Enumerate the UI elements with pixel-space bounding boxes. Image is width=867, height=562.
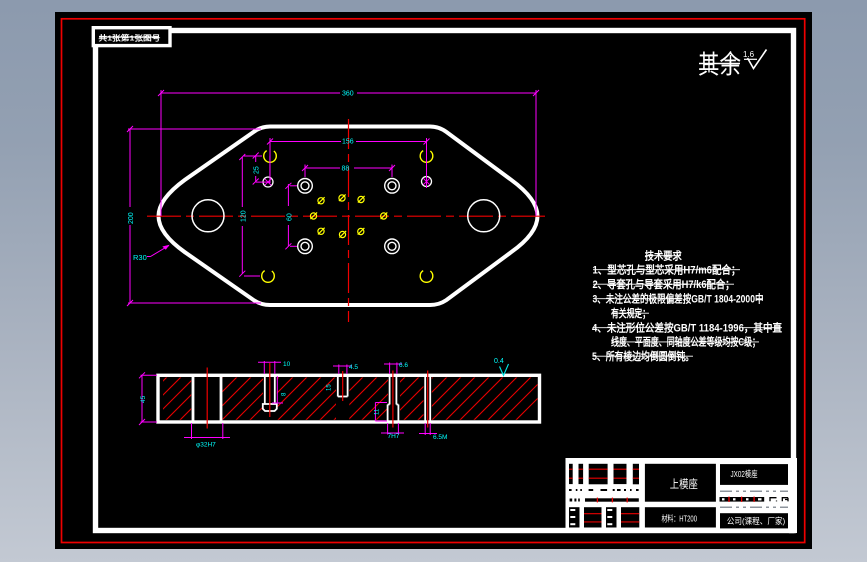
svg-text:88: 88 xyxy=(342,166,350,173)
svg-text:7H7: 7H7 xyxy=(388,433,400,440)
svg-text:6.6: 6.6 xyxy=(399,362,408,369)
svg-text:其余: 其余 xyxy=(698,50,741,80)
svg-text:JX02模座: JX02模座 xyxy=(731,469,758,479)
svg-text:25: 25 xyxy=(254,166,261,174)
svg-text:材料：HT200: 材料：HT200 xyxy=(662,513,698,523)
svg-text:15: 15 xyxy=(327,384,333,391)
svg-text:120: 120 xyxy=(240,210,247,222)
svg-text:φ32H7: φ32H7 xyxy=(196,442,216,449)
svg-text:60: 60 xyxy=(286,213,293,221)
svg-text:10: 10 xyxy=(283,361,291,368)
svg-text:200: 200 xyxy=(128,212,135,224)
svg-text:公司(课程、厂家): 公司(课程、厂家) xyxy=(727,516,786,526)
svg-text:R30: R30 xyxy=(133,253,147,262)
svg-text:1.6: 1.6 xyxy=(743,50,755,59)
svg-text:共1张第1张图号: 共1张第1张图号 xyxy=(99,34,162,43)
svg-text:156: 156 xyxy=(342,139,354,146)
svg-text:上模座: 上模座 xyxy=(670,477,698,491)
svg-text:11: 11 xyxy=(374,408,380,415)
svg-text:45: 45 xyxy=(140,395,147,403)
svg-text:6.5M: 6.5M xyxy=(433,434,447,441)
svg-text:360: 360 xyxy=(342,91,354,98)
svg-text:0.4: 0.4 xyxy=(494,358,504,365)
svg-text:4.5: 4.5 xyxy=(349,364,358,371)
